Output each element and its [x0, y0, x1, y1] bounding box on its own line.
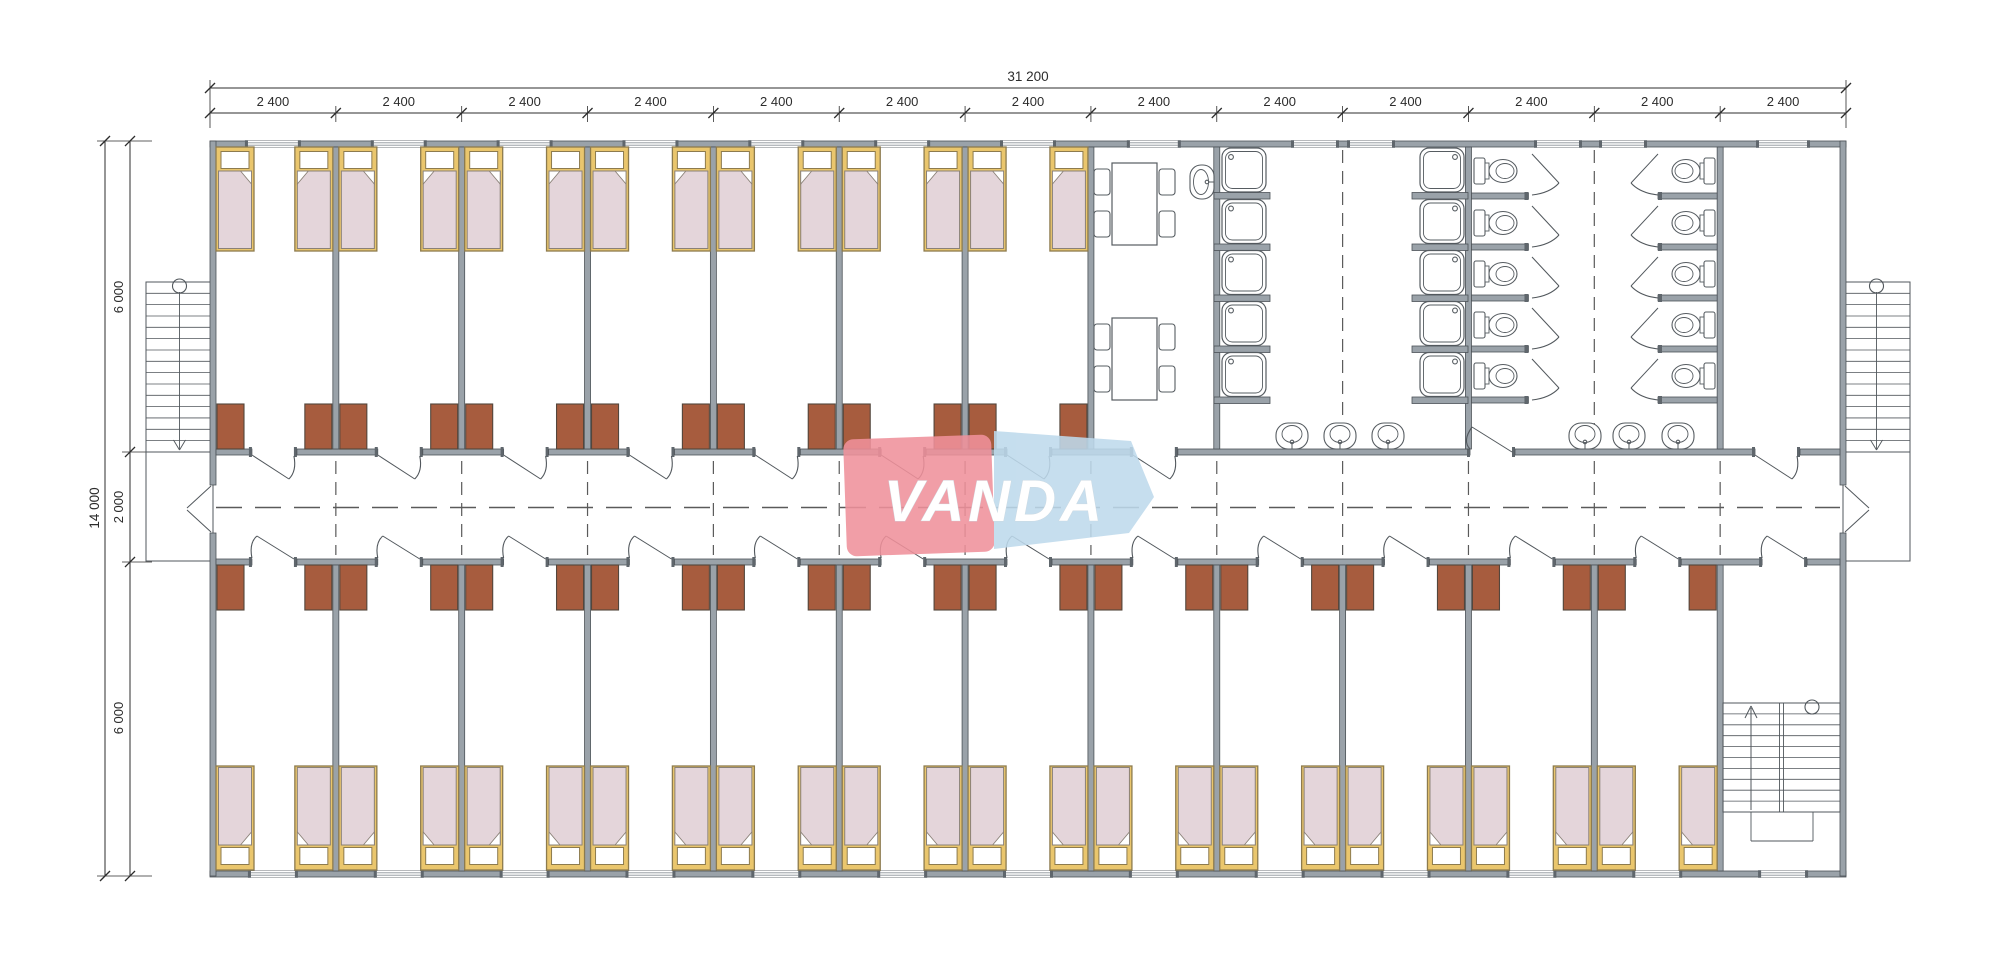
bed — [216, 147, 254, 251]
bed — [1553, 766, 1591, 870]
dim-label-module-width: 2 400 — [1641, 94, 1674, 109]
shower-column-left — [1214, 148, 1270, 404]
bed — [924, 766, 962, 870]
stool — [1689, 565, 1716, 610]
stool — [431, 404, 458, 449]
bed — [798, 147, 836, 251]
dim-label-seg-2000: 2 000 — [111, 491, 126, 524]
stool — [808, 565, 835, 610]
bed — [716, 766, 754, 870]
bed — [591, 147, 629, 251]
dim-label-module-width: 2 400 — [1515, 94, 1548, 109]
dim-label-seg-6000: 6 000 — [111, 702, 126, 735]
dim-label-module-width: 2 400 — [257, 94, 290, 109]
stool — [808, 404, 835, 449]
bed — [842, 147, 880, 251]
bed — [968, 766, 1006, 870]
bed — [798, 766, 836, 870]
bed — [716, 147, 754, 251]
stool — [305, 404, 332, 449]
stool — [217, 565, 244, 610]
logo-text: VANDA — [884, 469, 1106, 534]
bed — [547, 147, 585, 251]
dim-label-total-height: 14 000 — [87, 487, 102, 528]
bed — [465, 766, 503, 870]
dim-label-module-width: 2 400 — [1138, 94, 1171, 109]
shower-column-right — [1412, 148, 1468, 404]
bed — [1346, 766, 1384, 870]
dim-label-module-width: 2 400 — [1389, 94, 1422, 109]
bed — [672, 766, 710, 870]
stool — [340, 565, 367, 610]
stool — [1598, 565, 1625, 610]
bed — [842, 766, 880, 870]
dim-label-module-width: 2 400 — [760, 94, 793, 109]
stool — [1186, 565, 1213, 610]
bed — [1597, 766, 1635, 870]
floor-plan-page: 31 2002 4002 4002 4002 4002 4002 4002 40… — [0, 0, 2000, 977]
bed — [465, 147, 503, 251]
stool — [969, 565, 996, 610]
stool — [717, 404, 744, 449]
stool — [592, 565, 619, 610]
dim-label-module-width: 2 400 — [508, 94, 541, 109]
dim-label-module-width: 2 400 — [1012, 94, 1045, 109]
bed — [295, 766, 333, 870]
bed — [1302, 766, 1340, 870]
bed — [672, 147, 710, 251]
dim-label-module-width: 2 400 — [886, 94, 919, 109]
bed — [216, 766, 254, 870]
bed — [924, 147, 962, 251]
stool — [217, 404, 244, 449]
dim-label-module-width: 2 400 — [1767, 94, 1800, 109]
stool — [431, 565, 458, 610]
bed — [1471, 766, 1509, 870]
bed — [968, 147, 1006, 251]
dim-label-module-width: 2 400 — [634, 94, 667, 109]
bed — [591, 766, 629, 870]
dim-label-seg-6000: 6 000 — [111, 281, 126, 314]
bed — [1427, 766, 1465, 870]
bed — [547, 766, 585, 870]
stool — [1221, 565, 1248, 610]
bed — [421, 766, 459, 870]
stool — [843, 565, 870, 610]
bed — [1050, 147, 1088, 251]
bed — [339, 766, 377, 870]
stool — [1347, 565, 1374, 610]
bed — [1220, 766, 1258, 870]
stool — [717, 565, 744, 610]
bed — [1679, 766, 1717, 870]
bed — [421, 147, 459, 251]
stool — [1095, 565, 1122, 610]
dim-label-total-width: 31 200 — [1007, 69, 1048, 84]
stool — [1472, 565, 1499, 610]
stool — [466, 404, 493, 449]
stool — [557, 565, 584, 610]
stool — [557, 404, 584, 449]
dim-label-module-width: 2 400 — [382, 94, 415, 109]
stool — [1060, 565, 1087, 610]
dim-label-module-width: 2 400 — [1263, 94, 1296, 109]
stool — [682, 404, 709, 449]
floor-plan-drawing: 31 2002 4002 4002 4002 4002 4002 4002 40… — [0, 0, 2000, 977]
bed — [1094, 766, 1132, 870]
stool — [934, 565, 961, 610]
stool — [1312, 565, 1339, 610]
bed — [1050, 766, 1088, 870]
bed — [339, 147, 377, 251]
stool — [1563, 565, 1590, 610]
stool — [1437, 565, 1464, 610]
bed — [1176, 766, 1214, 870]
bed — [295, 147, 333, 251]
floor-plan-svg: 31 2002 4002 4002 4002 4002 4002 4002 40… — [0, 0, 2000, 977]
stool — [592, 404, 619, 449]
stool — [305, 565, 332, 610]
stool — [340, 404, 367, 449]
stool — [682, 565, 709, 610]
stool — [466, 565, 493, 610]
